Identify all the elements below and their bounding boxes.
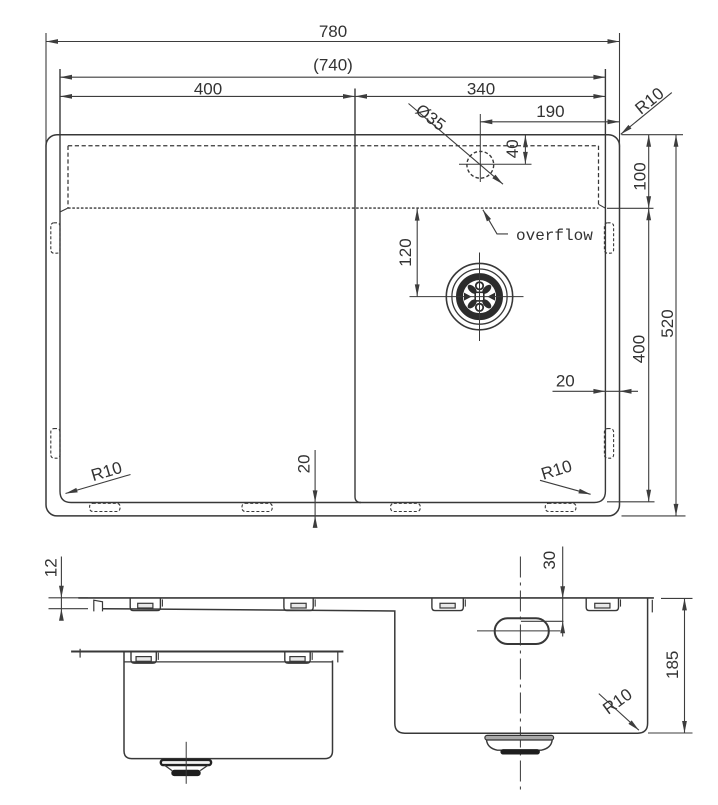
- svg-text:40: 40: [503, 139, 522, 158]
- svg-text:780: 780: [319, 22, 347, 41]
- svg-text:340: 340: [467, 80, 495, 99]
- svg-text:100: 100: [630, 162, 649, 190]
- svg-text:190: 190: [536, 102, 564, 121]
- svg-text:185: 185: [663, 651, 682, 679]
- svg-text:400: 400: [630, 335, 649, 363]
- svg-text:30: 30: [540, 551, 559, 570]
- svg-text:520: 520: [658, 309, 677, 337]
- svg-text:(740): (740): [313, 56, 353, 75]
- svg-text:12: 12: [42, 558, 61, 577]
- svg-text:120: 120: [396, 238, 415, 266]
- svg-text:400: 400: [194, 80, 222, 99]
- svg-text:overflow: overflow: [516, 227, 593, 245]
- svg-text:20: 20: [294, 454, 313, 473]
- svg-text:20: 20: [556, 372, 575, 391]
